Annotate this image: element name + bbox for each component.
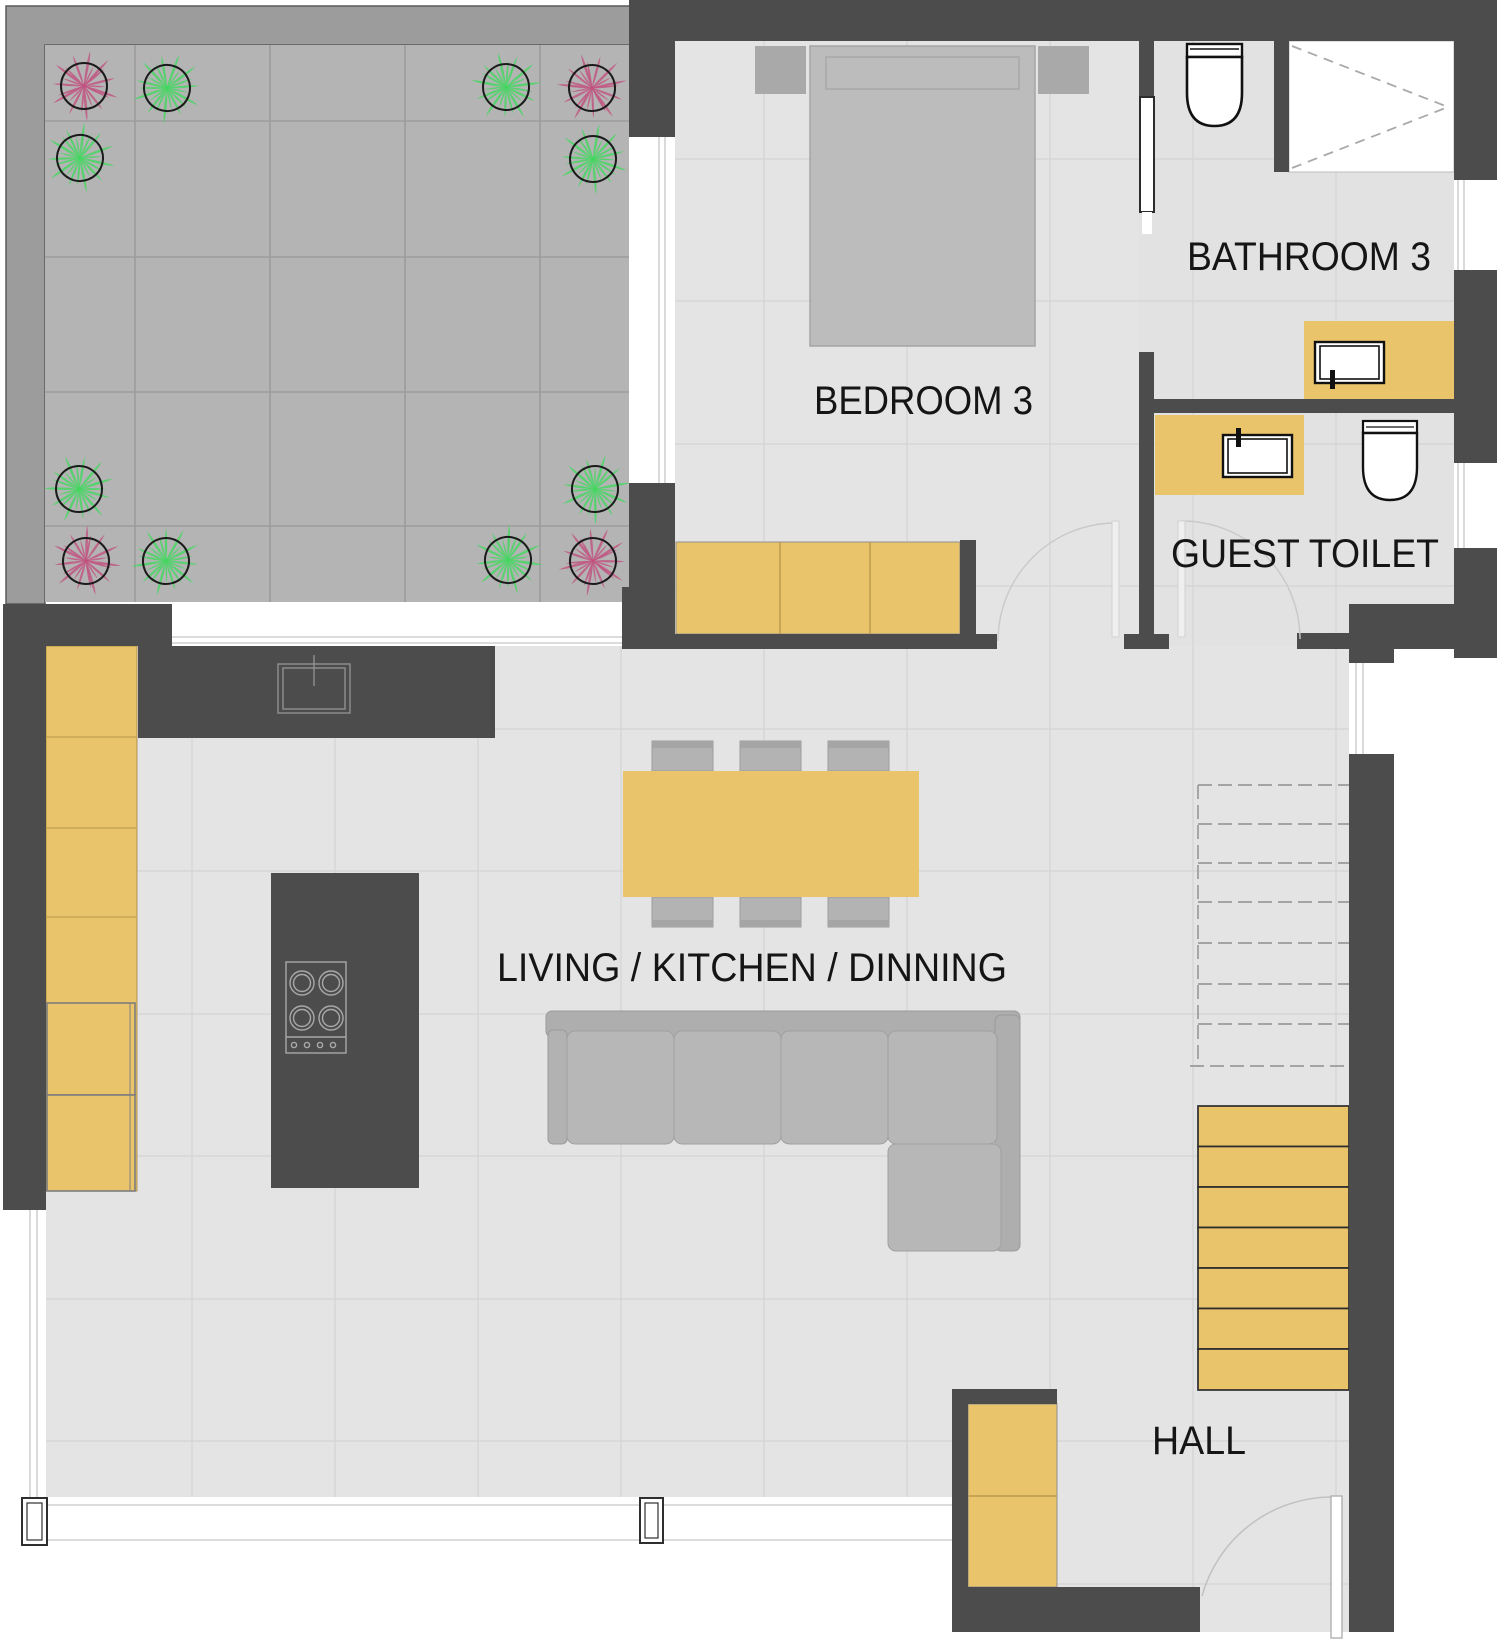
svg-text:HALL: HALL — [1152, 1419, 1246, 1463]
svg-text:BEDROOM 3: BEDROOM 3 — [814, 379, 1033, 423]
svg-text:GUEST TOILET: GUEST TOILET — [1171, 532, 1439, 576]
svg-text:BATHROOM 3: BATHROOM 3 — [1187, 235, 1431, 279]
svg-text:LIVING / KITCHEN / DINNING: LIVING / KITCHEN / DINNING — [497, 946, 1007, 990]
